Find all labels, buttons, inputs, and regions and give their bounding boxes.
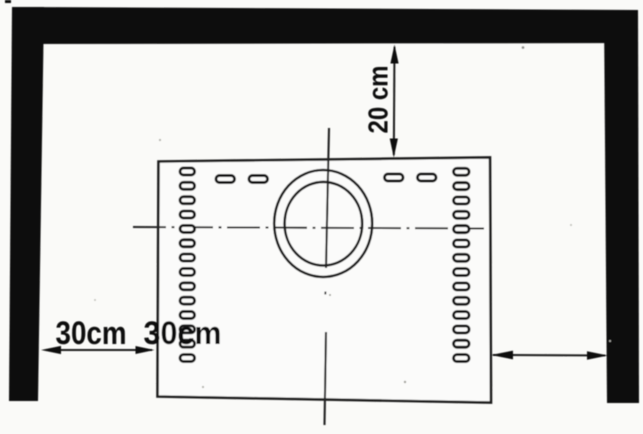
svg-text:20 cm: 20 cm (363, 66, 394, 134)
svg-text:30cm: 30cm (144, 315, 222, 351)
svg-text:30cm: 30cm (56, 315, 127, 351)
